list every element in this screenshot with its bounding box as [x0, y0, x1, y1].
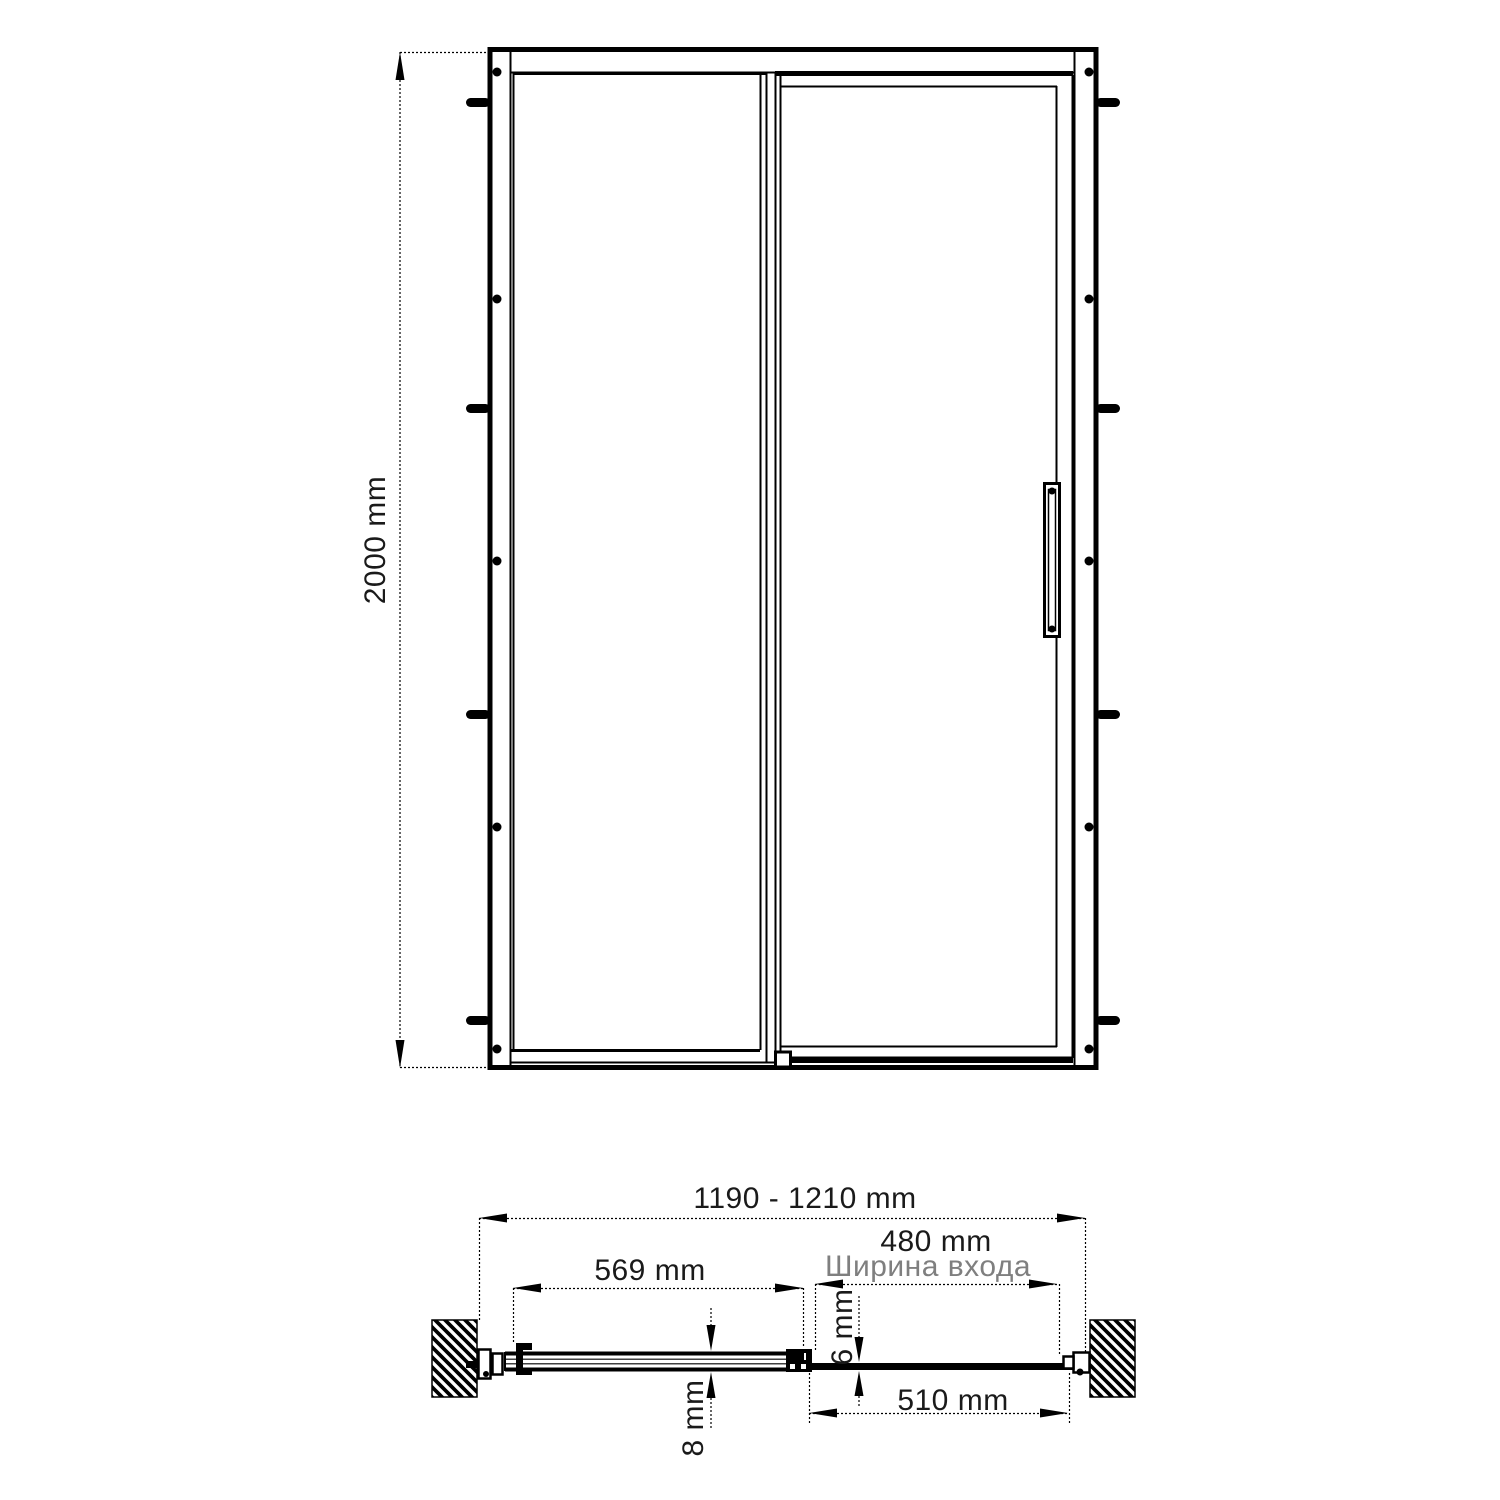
- fixed-panel-width-dimension-label: 569 mm: [594, 1256, 705, 1286]
- door-width-dimension-label: 510 mm: [897, 1386, 1008, 1416]
- wall-profile-right: [1064, 1353, 1090, 1376]
- handle-screw-top: [1049, 488, 1056, 495]
- screw-icon: [466, 1016, 490, 1025]
- fixed-glass-section: [505, 1352, 810, 1371]
- arrow-left-icon: [809, 1409, 837, 1418]
- screw-icon: [466, 404, 490, 413]
- screw-icon: [466, 98, 490, 107]
- panel-junction-block: [786, 1349, 812, 1372]
- arrow-up-icon: [855, 1371, 864, 1396]
- fixed-glass-thickness-label: 8 mm: [679, 1380, 709, 1457]
- screw-icon: [1096, 404, 1120, 413]
- overall-width-dimension-label: 1190 - 1210 mm: [693, 1184, 916, 1214]
- screw-icon: [1096, 98, 1120, 107]
- arrow-down-icon: [396, 1040, 405, 1068]
- door-glass-thickness-label: 6 mm: [828, 1289, 858, 1366]
- wall-section-right: [1090, 1320, 1135, 1397]
- door-guide-block: [776, 1052, 791, 1067]
- drawing-linework: [0, 0, 1500, 1500]
- front-view: [396, 50, 1121, 1069]
- arrow-left-icon: [479, 1214, 507, 1223]
- arrow-right-icon: [775, 1284, 803, 1293]
- arrow-right-icon: [1029, 1280, 1057, 1289]
- technical-drawing-canvas: 2000 mm 1190 - 1210 mm 569 mm 480 mm Шир…: [0, 0, 1500, 1500]
- entry-width-caption: Ширина входа: [825, 1252, 1031, 1282]
- arrow-down-icon: [707, 1325, 716, 1351]
- screw-icon: [1096, 710, 1120, 719]
- arrow-left-icon: [513, 1284, 541, 1293]
- door-handle: [1045, 484, 1060, 637]
- arrow-right-icon: [1057, 1214, 1085, 1223]
- wall-section-left: [432, 1320, 477, 1397]
- screw-icon: [1096, 1016, 1120, 1025]
- screw-icon: [466, 710, 490, 719]
- arrow-up-icon: [396, 52, 405, 80]
- plan-view: [432, 1214, 1135, 1431]
- handle-screw-bottom: [1049, 626, 1056, 633]
- outer-frame: [490, 50, 1096, 1068]
- dim-fixed-panel-width: [513, 1284, 804, 1349]
- dim-height-2000: [396, 52, 489, 1068]
- height-dimension-label: 2000 mm: [361, 476, 391, 605]
- arrow-right-icon: [1040, 1409, 1068, 1418]
